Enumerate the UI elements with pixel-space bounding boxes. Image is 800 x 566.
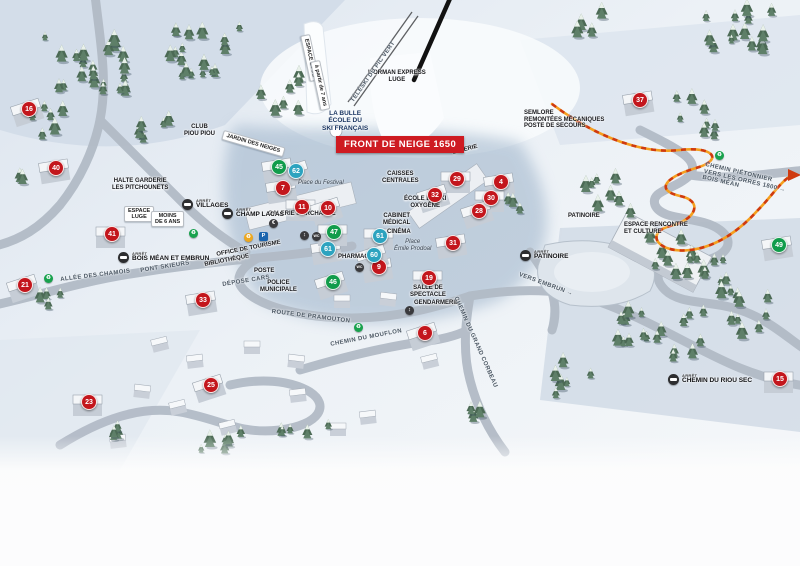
map-label: SEMLORE REMONTÉES MÉCANIQUES POSTE DE SE… xyxy=(524,110,604,130)
recycle-green-icon: ♻ xyxy=(354,323,363,332)
bus-stop: ARRÊT PATINOIRE xyxy=(520,250,568,261)
elevator-icon: ↕ xyxy=(300,231,309,240)
map-marker[interactable]: 61 xyxy=(320,241,336,257)
map-marker[interactable]: 23 xyxy=(81,394,97,410)
bus-icon xyxy=(520,250,531,261)
bus-icon xyxy=(118,252,129,263)
map-marker[interactable]: 19 xyxy=(421,270,437,286)
toilet-icon: WC xyxy=(312,232,321,241)
map-marker[interactable]: 16 xyxy=(21,101,37,117)
bus-stop: ARRÊT CHAMP LACAS xyxy=(222,208,284,219)
bus-icon xyxy=(182,199,193,210)
map-marker[interactable]: 32 xyxy=(427,187,443,203)
map-label: POLICE MUNICIPALE xyxy=(260,280,297,293)
bus-icon xyxy=(668,374,679,385)
map-marker[interactable]: 11 xyxy=(294,199,310,215)
map-marker[interactable]: 33 xyxy=(195,292,211,308)
map-marker[interactable]: 45 xyxy=(271,159,287,175)
map-label: MOINS DE 6 ANS xyxy=(151,211,184,227)
elevator-icon: ↕ xyxy=(405,306,414,315)
front-de-neige-banner: FRONT DE NEIGE 1650 xyxy=(336,136,464,153)
map-label: ESPACE RENCONTRE ET CULTURE xyxy=(624,222,688,235)
map-marker[interactable]: 62 xyxy=(288,163,304,179)
recycle-yellow-icon: ♻ xyxy=(244,233,253,242)
map-marker[interactable]: 41 xyxy=(104,226,120,242)
map-label: SALLE DE SPECTACLE xyxy=(410,285,446,298)
legend-strip: RÉSIDENCES 4LE BALCON DES ORRES6LE BELVÉ… xyxy=(0,436,800,566)
map-label: HALTE GARDERIE LES PITCHOUNETS xyxy=(112,178,168,191)
stop-name: CHAMP LACAS xyxy=(236,212,284,219)
resort-map: L'ORMAN EXPRESS LUGETÉLÉSKI DU PIC VERTE… xyxy=(0,0,800,566)
map-marker[interactable]: 6 xyxy=(417,325,433,341)
toilet-icon: WC xyxy=(355,263,364,272)
map-label: Place du Festival xyxy=(298,180,344,187)
recycle-green-icon: ♻ xyxy=(189,229,198,238)
map-marker[interactable]: 47 xyxy=(326,224,342,240)
map-marker[interactable]: 25 xyxy=(203,377,219,393)
map-marker[interactable]: 4 xyxy=(493,174,509,190)
map-label: CINÉMA xyxy=(387,229,411,236)
map-label: ESPACE LUGE xyxy=(124,206,154,222)
map-marker[interactable]: 49 xyxy=(771,237,787,253)
map-marker[interactable]: 61 xyxy=(372,228,388,244)
bus-stop: ARRÊT CHEMIN DU RIOU SEC xyxy=(668,374,752,385)
map-marker[interactable]: 28 xyxy=(471,203,487,219)
parking-icon: P xyxy=(259,232,268,241)
bus-icon xyxy=(222,208,233,219)
map-marker[interactable]: 40 xyxy=(48,160,64,176)
stop-name: CHEMIN DU RIOU SEC xyxy=(682,378,752,385)
map-marker[interactable]: 29 xyxy=(449,171,465,187)
map-label: PATINOIRE xyxy=(568,213,600,220)
bus-stop: ARRÊT BOIS MÉAN ET EMBRUN xyxy=(118,252,209,263)
map-label: POSTE xyxy=(254,268,274,275)
recycle-green-icon: ♻ xyxy=(715,151,724,160)
map-marker[interactable]: 46 xyxy=(325,274,341,290)
stop-name: PATINOIRE xyxy=(534,254,568,261)
recycle-green-icon: ♻ xyxy=(44,274,53,283)
map-label: LA BULLE ÉCOLE DU SKI FRANÇAIS xyxy=(322,110,368,132)
map-marker[interactable]: 31 xyxy=(445,235,461,251)
map-marker[interactable]: 7 xyxy=(275,180,291,196)
map-label: Place Émile Prodoal xyxy=(394,239,431,252)
map-marker[interactable]: 60 xyxy=(366,247,382,263)
map-marker[interactable]: 10 xyxy=(320,200,336,216)
stop-name: BOIS MÉAN ET EMBRUN xyxy=(132,256,209,263)
map-marker[interactable]: 21 xyxy=(17,277,33,293)
map-label: CABINET MÉDICAL xyxy=(383,213,410,226)
map-marker[interactable]: 37 xyxy=(632,92,648,108)
atm-icon: € xyxy=(269,219,278,228)
map-label: CAISSES CENTRALES xyxy=(382,171,419,184)
map-marker[interactable]: 30 xyxy=(483,190,499,206)
map-label: CLUB PIOU PIOU xyxy=(184,124,215,137)
map-marker[interactable]: 15 xyxy=(772,371,788,387)
